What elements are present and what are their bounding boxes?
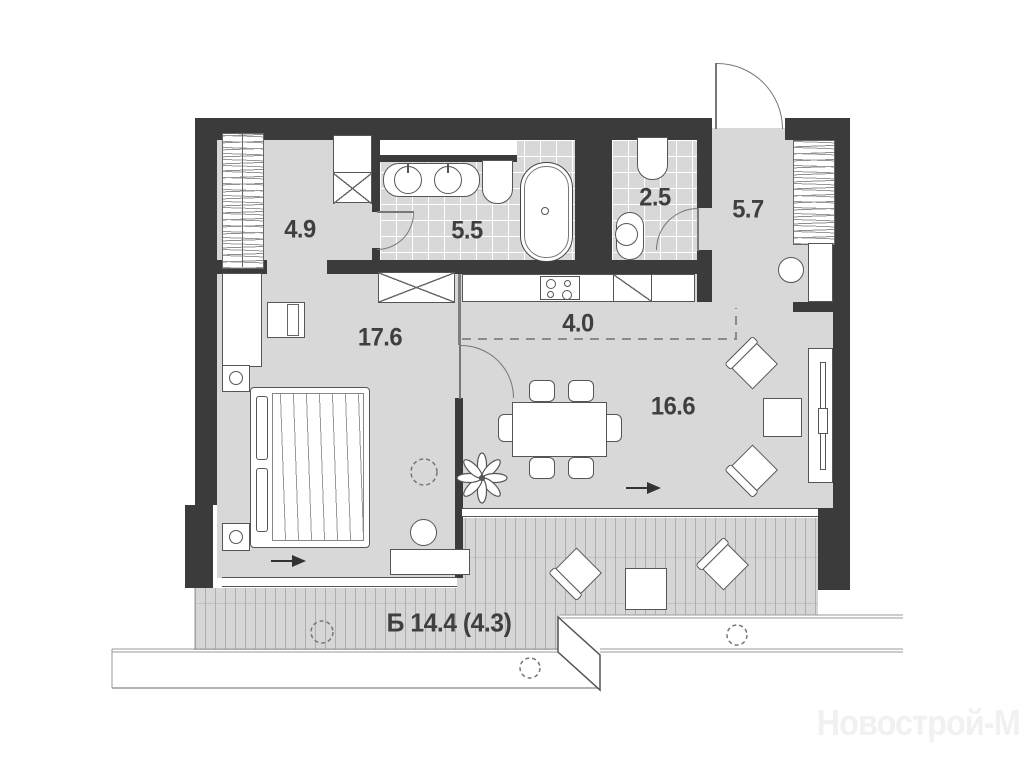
burner — [547, 291, 554, 298]
dining-chair — [529, 380, 555, 402]
mattress-blanket — [272, 393, 364, 541]
wall-segment — [697, 250, 712, 302]
wall-partition-thin — [458, 274, 461, 345]
wardrobe-divider — [242, 133, 243, 267]
closet-cross — [333, 172, 372, 204]
wall-segment — [185, 505, 213, 588]
floor-entry-gap — [712, 128, 785, 140]
side-table — [625, 568, 667, 610]
hatched-wardrobe — [793, 140, 835, 245]
stairs-wedge — [558, 617, 600, 690]
room-label-balcony: Б 14.4 (4.3) — [387, 608, 512, 639]
washbasin-bowl — [615, 223, 638, 246]
room-label-hallway: 5.7 — [732, 196, 764, 225]
room-label-living: 16.6 — [651, 393, 695, 422]
cooktop — [540, 276, 580, 300]
wardrobe — [222, 273, 262, 367]
dining-table — [512, 402, 607, 457]
wall-segment — [697, 140, 712, 208]
desk-with-chair — [267, 302, 305, 338]
wall-segment — [818, 508, 850, 590]
wall-segment — [793, 302, 833, 312]
dining-chair — [568, 457, 594, 479]
burner — [562, 290, 572, 300]
burner — [546, 279, 556, 289]
wall-segment — [195, 118, 712, 140]
wall-segment — [785, 118, 850, 140]
dining-chair — [529, 457, 555, 479]
dining-chair — [568, 380, 594, 402]
wall-segment — [372, 248, 380, 274]
window — [222, 577, 457, 587]
desk-chair-back — [287, 304, 299, 336]
side-table — [763, 398, 802, 437]
room-label-bathroom: 5.5 — [451, 217, 483, 246]
hatched-wardrobe — [222, 133, 264, 269]
wall-segment — [372, 140, 380, 212]
toilet — [482, 160, 513, 204]
lamp — [229, 371, 243, 385]
washing-machine — [613, 274, 652, 302]
pillow — [256, 468, 268, 532]
crossed-closet — [333, 135, 372, 203]
pouf — [778, 257, 804, 283]
floor-plan-canvas: Новострой-М — [0, 0, 1024, 768]
tv-mount — [818, 408, 828, 434]
entrance-door-swing — [717, 63, 783, 129]
floor-lamp — [410, 519, 437, 546]
lamp — [229, 530, 243, 544]
wall-segment — [833, 140, 850, 508]
room-label-bedroom: 17.6 — [358, 324, 402, 353]
faucet — [447, 163, 449, 173]
room-label-wc: 2.5 — [639, 184, 671, 213]
room-label-kitchen: 4.0 — [562, 310, 594, 339]
bathtub-drain — [541, 207, 549, 215]
watermark: Новострой-М — [817, 702, 1020, 744]
bench — [390, 549, 470, 575]
wall-segment — [195, 140, 217, 505]
wall-segment-shaft — [575, 140, 612, 262]
window — [462, 508, 818, 517]
bathroom-niche — [380, 140, 517, 155]
faucet — [407, 163, 409, 173]
toilet — [637, 137, 668, 180]
burner — [564, 280, 571, 287]
pillow — [256, 396, 268, 460]
crossed-closet — [378, 272, 455, 303]
room-label-dressing: 4.9 — [284, 216, 316, 245]
hall-console — [808, 243, 833, 302]
